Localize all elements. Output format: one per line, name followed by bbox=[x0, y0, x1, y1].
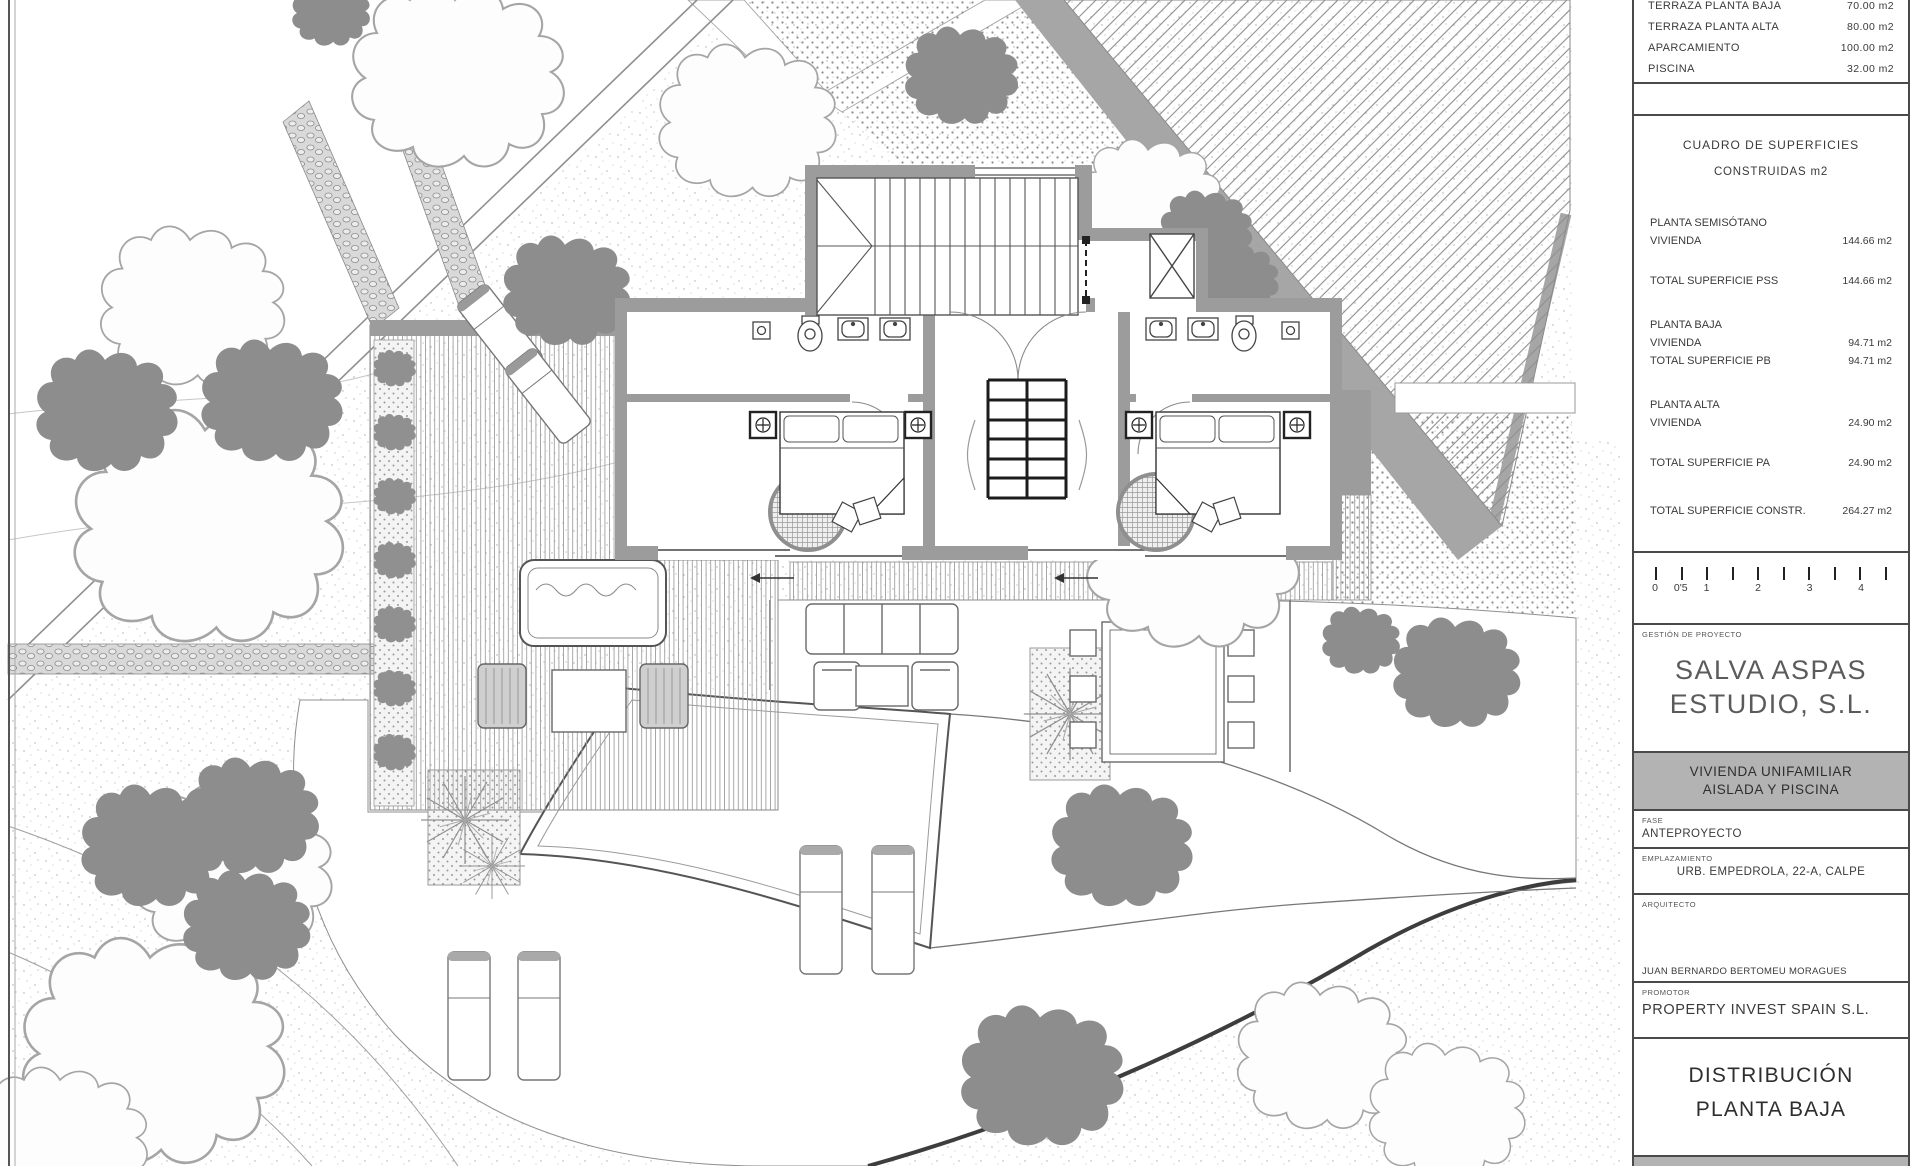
table-row: TOTAL SUPERFICIE CONSTR.264.27 m2 bbox=[1634, 502, 1908, 520]
row-value: 100.00 m2 bbox=[1841, 42, 1894, 54]
promotor-label: PROMOTOR bbox=[1634, 983, 1908, 997]
table-row: VIVIENDA144.66 m2 bbox=[1634, 232, 1908, 250]
scale-labels: 0 0'5 1 2 3 4 bbox=[1655, 582, 1887, 596]
row-label: APARCAMIENTO bbox=[1648, 42, 1740, 54]
site-plan-drawing bbox=[0, 0, 1620, 1166]
scale-ticks bbox=[1655, 567, 1887, 580]
row-label: PISCINA bbox=[1648, 63, 1695, 75]
arquitecto-box: ARQUITECTO JUAN BERNARDO BERTOMEU MORAGU… bbox=[1634, 895, 1908, 983]
table-row: PLANTA BAJA bbox=[1634, 316, 1908, 334]
promotor-value: PROPERTY INVEST SPAIN S.L. bbox=[1634, 1002, 1908, 1018]
fase-box: FASE ANTEPROYECTO bbox=[1634, 811, 1908, 849]
staircase bbox=[817, 178, 1078, 315]
gravel-path-band bbox=[1395, 383, 1575, 413]
drawing-sheet: TERRAZA PLANTA BAJA 70.00 m2 TERRAZA PLA… bbox=[0, 0, 1920, 1166]
emplazamiento-value: URB. EMPEDROLA, 22-A, CALPE bbox=[1634, 866, 1908, 878]
arquitecto-value: JUAN BERNARDO BERTOMEU MORAGUES bbox=[1642, 966, 1847, 977]
table-row: APARCAMIENTO 100.00 m2 bbox=[1634, 37, 1908, 58]
title-block: TERRAZA PLANTA BAJA 70.00 m2 TERRAZA PLA… bbox=[1632, 0, 1910, 1166]
table-row: PLANTA ALTA bbox=[1634, 396, 1908, 414]
table-row: TERRAZA PLANTA ALTA 80.00 m2 bbox=[1634, 16, 1908, 37]
gestion-label: GESTIÓN DE PROYECTO bbox=[1634, 625, 1908, 639]
closet bbox=[1150, 234, 1194, 298]
sheet-title: DISTRIBUCIÓN PLANTA BAJA bbox=[1634, 1059, 1908, 1127]
promotor-box: PROMOTOR PROPERTY INVEST SPAIN S.L. bbox=[1634, 983, 1908, 1039]
row-label: TERRAZA PLANTA ALTA bbox=[1648, 21, 1779, 33]
emplazamiento-box: EMPLAZAMIENTO URB. EMPEDROLA, 22-A, CALP… bbox=[1634, 849, 1908, 895]
emplazamiento-label: EMPLAZAMIENTO bbox=[1634, 849, 1908, 863]
row-value: 80.00 m2 bbox=[1847, 21, 1894, 33]
table-row: VIVIENDA24.90 m2 bbox=[1634, 414, 1908, 432]
scale-bar: 0 0'5 1 2 3 4 bbox=[1634, 553, 1908, 625]
built-areas-table: CUADRO DE SUPERFICIES CONSTRUIDAS m2 PLA… bbox=[1634, 116, 1908, 553]
studio-box: GESTIÓN DE PROYECTO SALVA ASPAS ESTUDIO,… bbox=[1634, 625, 1908, 753]
arquitecto-label: ARQUITECTO bbox=[1634, 895, 1908, 909]
table-row: TOTAL SUPERFICIE PA24.90 m2 bbox=[1634, 454, 1908, 472]
table-row: TERRAZA PLANTA BAJA 70.00 m2 bbox=[1634, 0, 1908, 16]
table-row: TOTAL SUPERFICIE PB94.71 m2 bbox=[1634, 352, 1908, 370]
row-label: TERRAZA PLANTA BAJA bbox=[1648, 0, 1781, 12]
sheet-title-box: DISTRIBUCIÓN PLANTA BAJA bbox=[1634, 1039, 1908, 1157]
spacer-row bbox=[1634, 84, 1908, 116]
row-value: 70.00 m2 bbox=[1847, 0, 1894, 12]
surface-areas-table: TERRAZA PLANTA BAJA 70.00 m2 TERRAZA PLA… bbox=[1634, 0, 1908, 84]
table-title: CUADRO DE SUPERFICIES bbox=[1634, 138, 1908, 152]
table-row: TOTAL SUPERFICIE PSS144.66 m2 bbox=[1634, 272, 1908, 290]
table-row: VIVIENDA94.71 m2 bbox=[1634, 334, 1908, 352]
bottom-gray-bar bbox=[1634, 1157, 1908, 1166]
row-value: 32.00 m2 bbox=[1847, 63, 1894, 75]
project-title-banner: VIVIENDA UNIFAMILIAR AISLADA Y PISCINA bbox=[1634, 753, 1908, 811]
fase-value: ANTEPROYECTO bbox=[1634, 828, 1908, 840]
table-row: PISCINA 32.00 m2 bbox=[1634, 58, 1908, 79]
table-row: PLANTA SEMISÓTANO bbox=[1634, 214, 1908, 232]
studio-name: SALVA ASPAS ESTUDIO, S.L. bbox=[1634, 653, 1908, 721]
fase-label: FASE bbox=[1634, 811, 1908, 825]
table-subtitle: CONSTRUIDAS m2 bbox=[1634, 166, 1908, 178]
